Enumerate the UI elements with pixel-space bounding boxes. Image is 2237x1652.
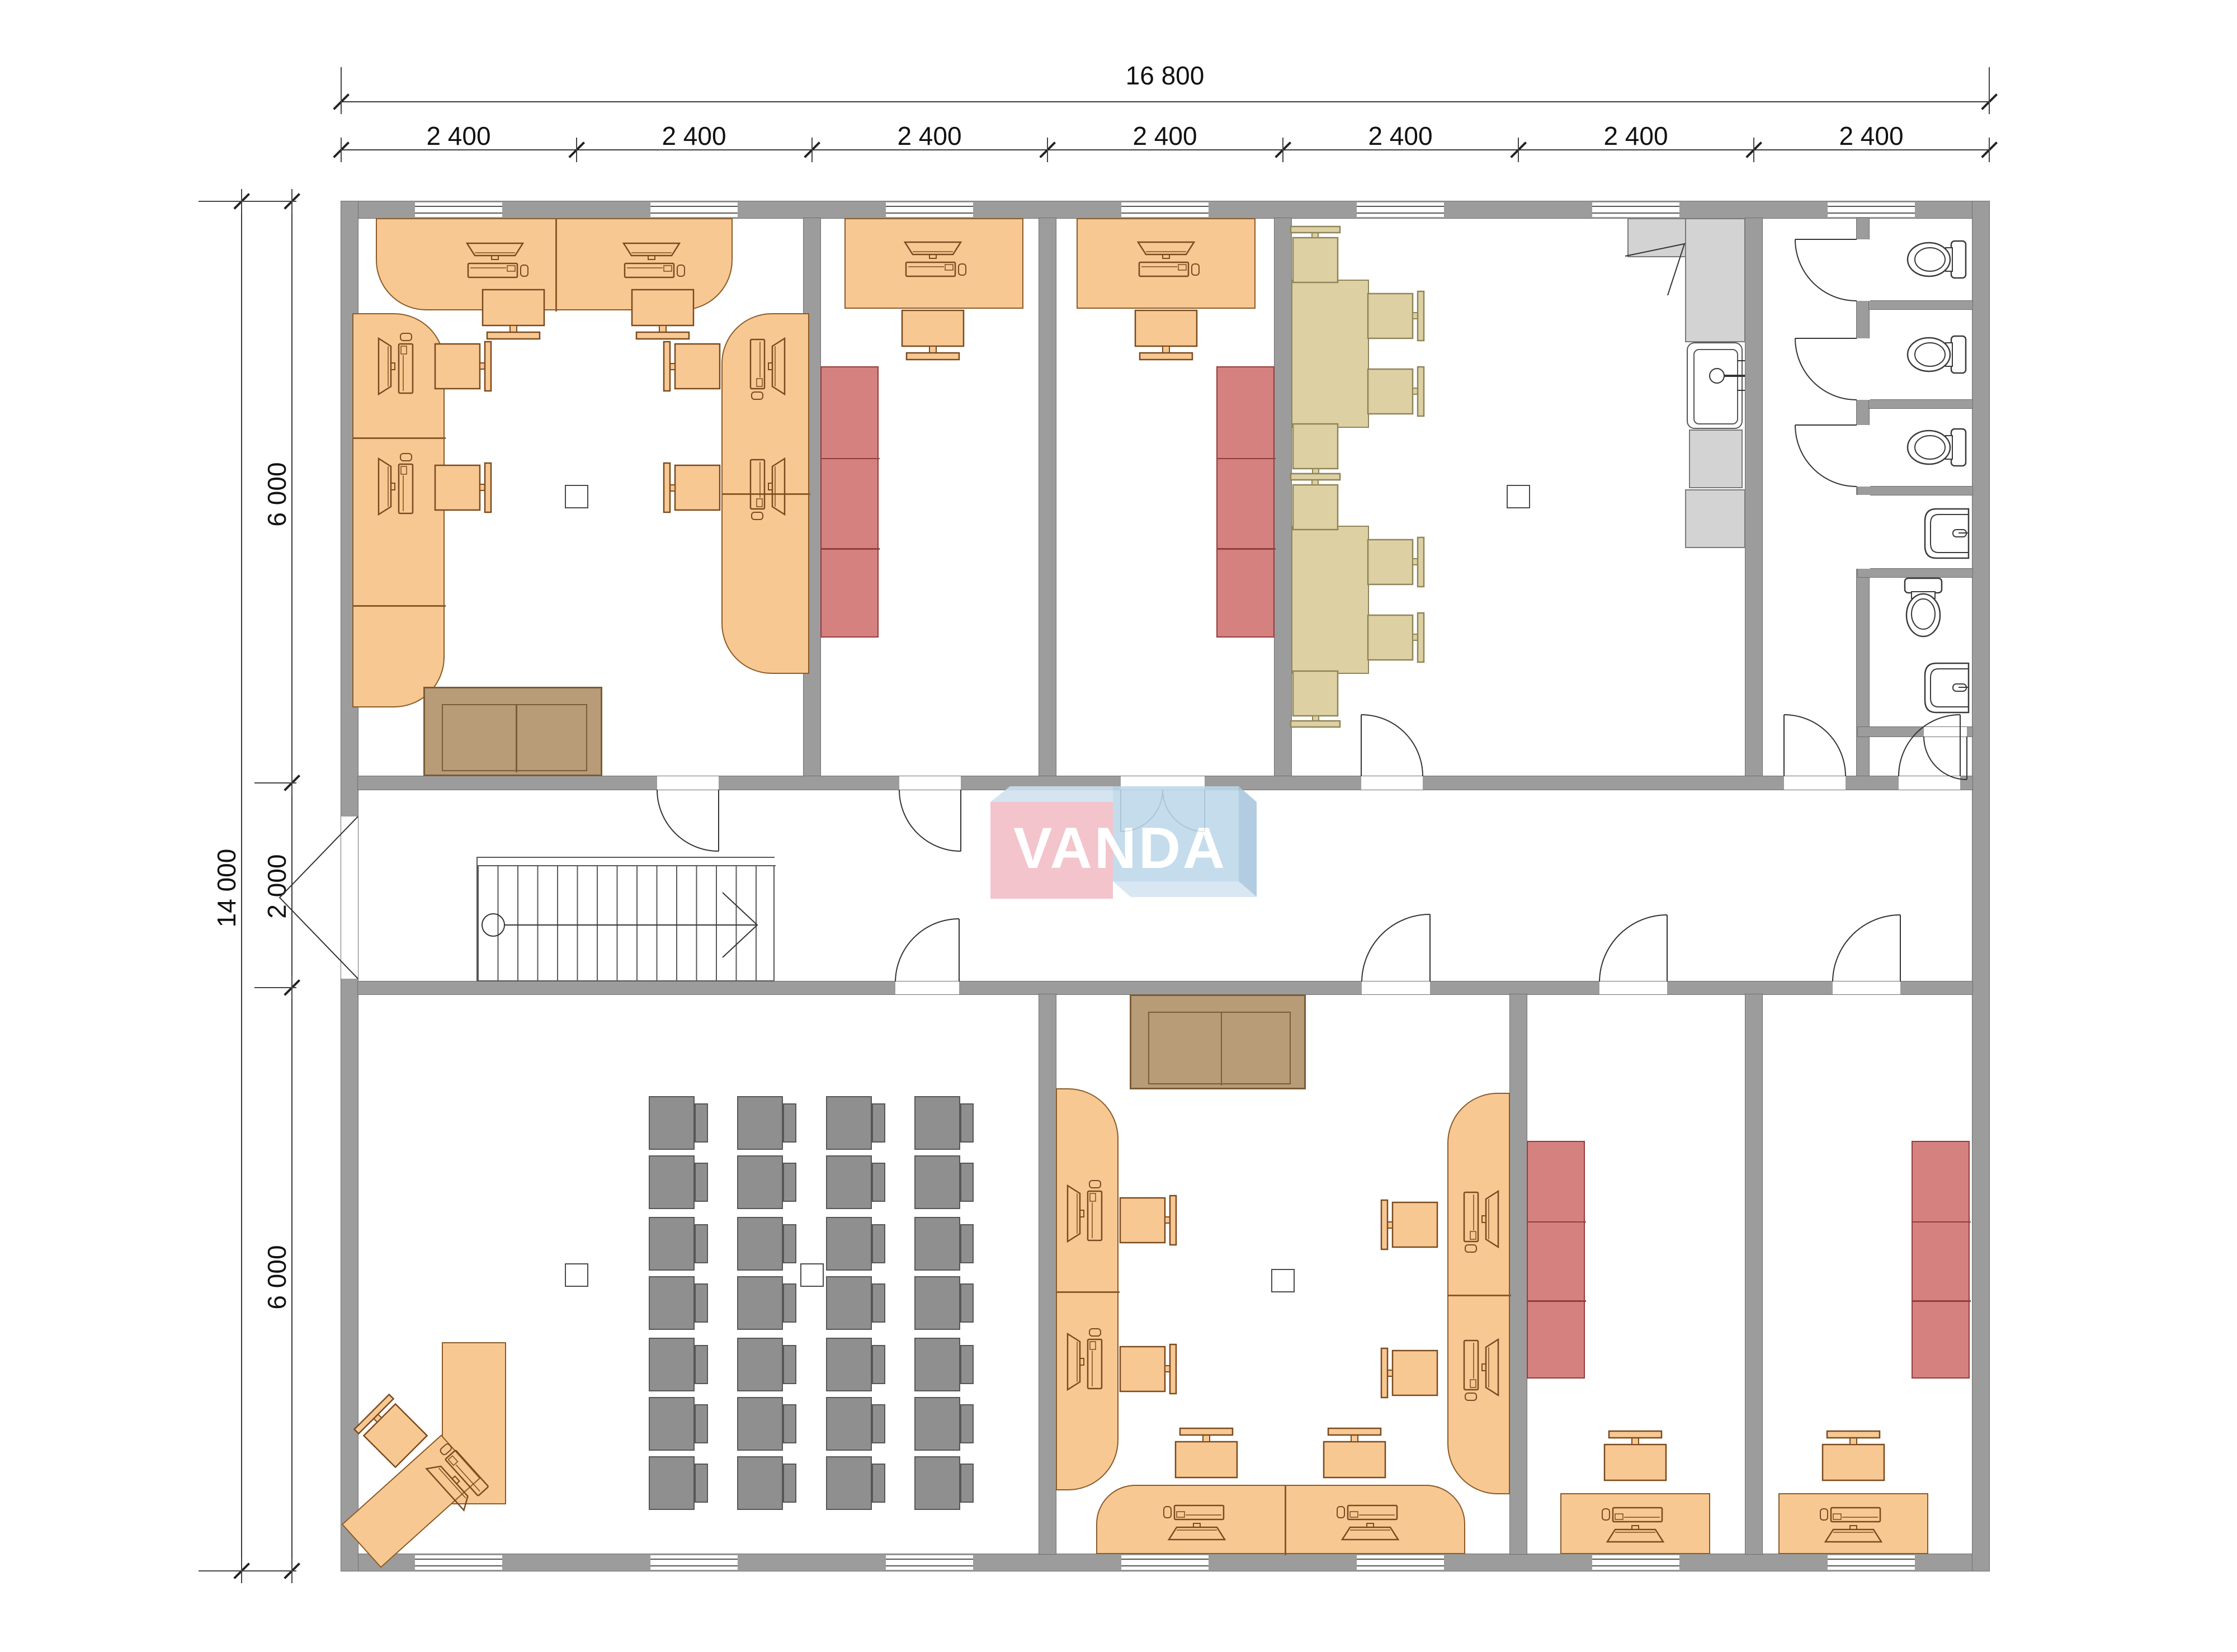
classroom-seat [826, 1338, 885, 1391]
kitchen-counter [1685, 218, 1745, 342]
classroom-seat [914, 1338, 974, 1391]
chair [1603, 1426, 1668, 1482]
seat-tablet [695, 1464, 708, 1503]
seat-tablet [960, 1224, 974, 1263]
extension-line [341, 67, 342, 112]
window-frame-line [1357, 206, 1444, 207]
wall [1869, 400, 1972, 408]
window [650, 1555, 738, 1570]
dimension-tick [576, 138, 577, 162]
seat [914, 1397, 960, 1451]
kitchen-appliance [1689, 429, 1743, 488]
seat [737, 1155, 783, 1209]
window [886, 1555, 973, 1570]
seat-tablet [695, 1163, 708, 1202]
dimension-tick [1753, 138, 1754, 162]
classroom-seat [914, 1155, 974, 1209]
window-frame-line [650, 1565, 738, 1566]
wall [1039, 218, 1056, 776]
toilet [1904, 237, 1970, 282]
workstation-computer [1455, 1325, 1503, 1409]
dim-top-segment-3: 2 400 [885, 121, 974, 151]
seat-tablet [960, 1404, 974, 1443]
window-frame-line [1592, 1559, 1679, 1560]
counter-divider [353, 437, 446, 439]
seat [914, 1338, 960, 1391]
window-frame-line [1828, 206, 1915, 207]
workstation-computer [1063, 1172, 1111, 1255]
seat-tablet [695, 1103, 708, 1143]
sofa-seat [1148, 1012, 1291, 1084]
classroom-seat [737, 1276, 796, 1330]
sofa-seat [442, 704, 587, 771]
seat [826, 1338, 872, 1391]
workstation-computer [1455, 1177, 1503, 1261]
desk-counter [1447, 1093, 1510, 1494]
classroom-seat [914, 1096, 974, 1150]
seat-tablet [872, 1224, 885, 1263]
window [1357, 1555, 1444, 1570]
workstation-computer [1811, 1498, 1895, 1546]
window-frame-line [886, 213, 973, 214]
door-swing-line [1599, 915, 1667, 981]
seat-tablet [872, 1345, 885, 1384]
seat-tablet [783, 1283, 796, 1323]
door-opening [1924, 727, 1967, 737]
door-opening [1362, 981, 1430, 994]
dining-chair [1286, 225, 1344, 284]
dining-chair [1367, 608, 1425, 667]
seat-tablet [872, 1163, 885, 1202]
door-opening [657, 776, 719, 790]
classroom-seat [737, 1096, 796, 1150]
seat [914, 1276, 960, 1330]
dimension-line [341, 101, 1989, 102]
seat [649, 1155, 695, 1209]
window-frame-line [1357, 1559, 1444, 1560]
structural-column [565, 485, 588, 508]
seat-tablet [783, 1103, 796, 1143]
seat [737, 1217, 783, 1271]
extension-line [1989, 67, 1990, 112]
dining-table [1291, 280, 1369, 428]
dimension-tick [1518, 138, 1519, 162]
dim-left-segment-2: 2 000 [262, 842, 292, 931]
workstation-computer [1155, 1496, 1239, 1544]
window-frame-line [1592, 1565, 1679, 1566]
chair [1380, 1196, 1438, 1254]
dim-left-segment-3: 6 000 [262, 1233, 292, 1322]
dim-top-segment-1: 2 400 [414, 121, 503, 151]
seat-tablet [872, 1464, 885, 1503]
seat-tablet [960, 1163, 974, 1202]
classroom-seat [826, 1397, 885, 1451]
seat [649, 1456, 695, 1510]
window-frame-line [415, 1565, 502, 1566]
window [1121, 1555, 1209, 1570]
workstation-computer [610, 239, 693, 287]
dim-top-segment-5: 2 400 [1356, 121, 1445, 151]
dim-top-segment-4: 2 400 [1120, 121, 1210, 151]
window [1828, 1555, 1915, 1570]
dimension-tick [1047, 138, 1048, 162]
wall [1869, 301, 1972, 309]
kitchen-appliance [1685, 489, 1745, 548]
classroom-seat [649, 1217, 708, 1271]
classroom-seat [649, 1276, 708, 1330]
window-frame-line [650, 213, 738, 214]
chair [434, 337, 492, 395]
window-frame-line [650, 1559, 738, 1560]
seat-tablet [960, 1464, 974, 1503]
chair [1380, 1344, 1438, 1402]
seat [914, 1155, 960, 1209]
seat-tablet [783, 1464, 796, 1503]
extension-line [199, 1570, 296, 1571]
chair [900, 309, 965, 365]
window-frame-line [886, 1565, 973, 1566]
window [886, 202, 973, 217]
cabinet-shelf-line [1528, 1221, 1586, 1223]
window-frame-line [886, 206, 973, 207]
dining-table [1291, 526, 1369, 674]
classroom-seat [649, 1456, 708, 1510]
toilet [1904, 424, 1970, 470]
sofa-cushion-divider [516, 705, 517, 772]
seat-tablet [695, 1345, 708, 1384]
classroom-seat [826, 1155, 885, 1209]
counter-divider [1285, 1486, 1286, 1555]
classroom-seat [649, 1096, 708, 1150]
classroom-seat [649, 1338, 708, 1391]
window-frame-line [1828, 213, 1915, 214]
window [1592, 202, 1679, 217]
door-swing-line [1361, 715, 1423, 776]
wash-basin [1922, 507, 1971, 560]
cabinet-shelf-line [1217, 548, 1276, 550]
door-swing-line [1833, 915, 1900, 981]
door-opening [1833, 981, 1900, 994]
chair [1134, 309, 1198, 365]
door-opening [1856, 495, 1870, 569]
seat-tablet [872, 1404, 885, 1443]
seat-tablet [960, 1103, 974, 1143]
seat [914, 1096, 960, 1150]
monitor-stand [1322, 1423, 1387, 1479]
classroom-seat [914, 1217, 974, 1271]
seat-tablet [783, 1345, 796, 1384]
window [1121, 202, 1209, 217]
door-opening [1784, 776, 1846, 790]
extension-line [254, 782, 296, 783]
cabinet-shelf-line [1528, 1300, 1586, 1302]
door-opening [341, 816, 358, 979]
seat [737, 1276, 783, 1330]
structural-column [565, 1263, 588, 1287]
wall [1745, 218, 1762, 776]
classroom-seat [737, 1155, 796, 1209]
door-opening [1856, 239, 1870, 301]
chair [1821, 1426, 1886, 1482]
window-frame-line [1828, 1559, 1915, 1560]
seat-tablet [783, 1404, 796, 1443]
seat-tablet [960, 1345, 974, 1384]
workstation-computer [453, 239, 537, 287]
classroom-seat [826, 1276, 885, 1330]
door-opening [1899, 776, 1960, 790]
classroom-seat [826, 1217, 885, 1271]
window-frame-line [886, 1559, 973, 1560]
monitor-stand [630, 288, 695, 344]
classroom-seat [737, 1456, 796, 1510]
window [1828, 202, 1915, 217]
classroom-seat [914, 1276, 974, 1330]
window-frame-line [650, 206, 738, 207]
structural-column [1271, 1269, 1295, 1292]
seat-tablet [960, 1283, 974, 1323]
extension-line [254, 987, 296, 988]
desk-counter [1056, 1088, 1118, 1490]
window-frame-line [415, 1559, 502, 1560]
dim-left-segment-1: 6 000 [262, 450, 292, 539]
logo-right-bevel [1239, 786, 1257, 897]
dim-left-total: 14 000 [211, 815, 242, 961]
toilet [1904, 332, 1970, 377]
window-frame-line [415, 213, 502, 214]
chair [663, 459, 721, 517]
seat [914, 1217, 960, 1271]
dimension-line [341, 149, 1989, 150]
classroom-seat [649, 1155, 708, 1209]
workstation-computer [1328, 1496, 1412, 1544]
seat [826, 1096, 872, 1150]
seat [649, 1276, 695, 1330]
seat [737, 1397, 783, 1451]
door-swing-line [657, 790, 719, 851]
chair [434, 459, 492, 517]
storage-cabinet [1527, 1141, 1585, 1379]
door-swing-line [1795, 425, 1857, 487]
window-frame-line [1357, 1565, 1444, 1566]
cabinet-shelf-line [822, 548, 880, 550]
toilet [1900, 574, 1946, 640]
door-opening [1856, 338, 1870, 400]
window [1357, 202, 1444, 217]
sofa [423, 687, 602, 776]
sofa-cushion-divider [1221, 1013, 1223, 1085]
seat [649, 1217, 695, 1271]
window-frame-line [1592, 213, 1679, 214]
seat-tablet [783, 1224, 796, 1263]
classroom-seat [737, 1397, 796, 1451]
window-frame-line [1121, 1559, 1209, 1560]
classroom-seat [914, 1397, 974, 1451]
door-swing-line [895, 919, 959, 981]
classroom-seat [914, 1456, 974, 1510]
wall [1972, 201, 1989, 1571]
wall [1745, 994, 1762, 1554]
monitor-stand [481, 288, 546, 344]
door-swing-line [1795, 338, 1857, 400]
classroom-seat [737, 1217, 796, 1271]
cabinet-shelf-line [1913, 1221, 1971, 1223]
window [415, 202, 502, 217]
dim-top-segment-2: 2 400 [649, 121, 739, 151]
storage-cabinet [1216, 366, 1275, 638]
window-frame-line [1121, 213, 1209, 214]
sofa [1130, 994, 1306, 1089]
structural-column [800, 1263, 824, 1287]
cabinet-shelf-line [1913, 1300, 1971, 1302]
counter-divider [555, 219, 557, 311]
dimension-line [291, 201, 292, 1571]
classroom-seat [737, 1338, 796, 1391]
window-frame-line [1357, 213, 1444, 214]
workstation-computer [741, 445, 789, 528]
seat [826, 1217, 872, 1271]
door-swing-line [1784, 715, 1846, 776]
logo-top-bevel [990, 786, 1132, 802]
dining-chair [1367, 362, 1425, 421]
workstation-computer [374, 324, 422, 408]
seat [826, 1397, 872, 1451]
door-swing-line [1899, 715, 1960, 776]
seat [826, 1456, 872, 1510]
seat [826, 1276, 872, 1330]
wall [358, 981, 1972, 994]
seat-tablet [783, 1163, 796, 1202]
door-opening [1599, 981, 1667, 994]
seat-tablet [695, 1404, 708, 1443]
counter-divider [353, 605, 446, 607]
door-swing-line [1924, 737, 1967, 780]
floor-plan-canvas: 16 800 2 400 2 400 2 400 2 400 2 400 2 4… [0, 0, 2237, 1652]
logo-bottom-bevel [1113, 881, 1257, 897]
stair-direction-arrow [476, 857, 775, 981]
window-frame-line [1121, 1565, 1209, 1566]
wall [1858, 487, 1972, 495]
classroom-seat [826, 1456, 885, 1510]
workstation-computer [741, 324, 789, 408]
storage-cabinet [820, 366, 879, 638]
kitchen-sink-unit [1687, 342, 1743, 429]
seat [737, 1456, 783, 1510]
window-frame-line [1592, 206, 1679, 207]
dimension-tick [1282, 138, 1283, 162]
wall [1510, 994, 1527, 1554]
dining-chair [1367, 533, 1425, 591]
cabinet-shelf-line [1217, 458, 1276, 460]
seat-tablet [872, 1283, 885, 1323]
seat [649, 1397, 695, 1451]
window [650, 202, 738, 217]
dimension-tick [811, 138, 813, 162]
workstation-computer [891, 238, 975, 286]
seat [737, 1338, 783, 1391]
chair [663, 337, 721, 395]
classroom-seat [649, 1397, 708, 1451]
seat [737, 1096, 783, 1150]
seat-tablet [695, 1283, 708, 1323]
cabinet-shelf-line [822, 458, 880, 460]
dim-top-segment-7: 2 400 [1827, 121, 1916, 151]
door-swing-line [1795, 239, 1857, 301]
classroom-seat [826, 1096, 885, 1150]
workstation-computer [1124, 238, 1208, 286]
kitchen-sink-basin [1693, 349, 1738, 424]
vanda-watermark-logo: VANDA [973, 772, 1264, 906]
monitor-stand [1174, 1423, 1239, 1479]
window [415, 1555, 502, 1570]
workstation-computer [1063, 1320, 1111, 1404]
extension-line [199, 201, 296, 202]
seat [649, 1096, 695, 1150]
window-frame-line [415, 206, 502, 207]
window-frame-line [1828, 1565, 1915, 1566]
storage-cabinet [1912, 1141, 1970, 1379]
dining-chair [1286, 670, 1344, 728]
window [1592, 1555, 1679, 1570]
dim-top-total: 16 800 [1092, 60, 1238, 91]
dimension-line [241, 201, 242, 1571]
seat [826, 1155, 872, 1209]
counter-divider [1448, 1295, 1511, 1296]
door-opening [895, 981, 959, 994]
seat-tablet [872, 1103, 885, 1143]
door-opening [1856, 425, 1870, 487]
chair [1119, 1340, 1177, 1398]
window-frame-line [1121, 206, 1209, 207]
dining-chair [1367, 287, 1425, 345]
wash-basin [1922, 661, 1971, 715]
counter-divider [1057, 1291, 1120, 1293]
dining-chair [1286, 473, 1344, 531]
door-opening [899, 776, 961, 790]
workstation-computer [1593, 1498, 1677, 1546]
logo-text: VANDA [1013, 816, 1227, 881]
seat-tablet [695, 1224, 708, 1263]
seat [649, 1338, 695, 1391]
workstation-computer [374, 445, 422, 528]
seat [914, 1456, 960, 1510]
wall [1039, 994, 1056, 1554]
dimension-tick [1989, 138, 1990, 162]
dimension-tick [341, 138, 342, 162]
door-swing-line [1362, 914, 1430, 981]
structural-column [1507, 485, 1530, 508]
door-swing-line [899, 790, 961, 851]
door-opening [1361, 776, 1423, 790]
dim-top-segment-6: 2 400 [1591, 121, 1681, 151]
chair [1119, 1191, 1177, 1249]
